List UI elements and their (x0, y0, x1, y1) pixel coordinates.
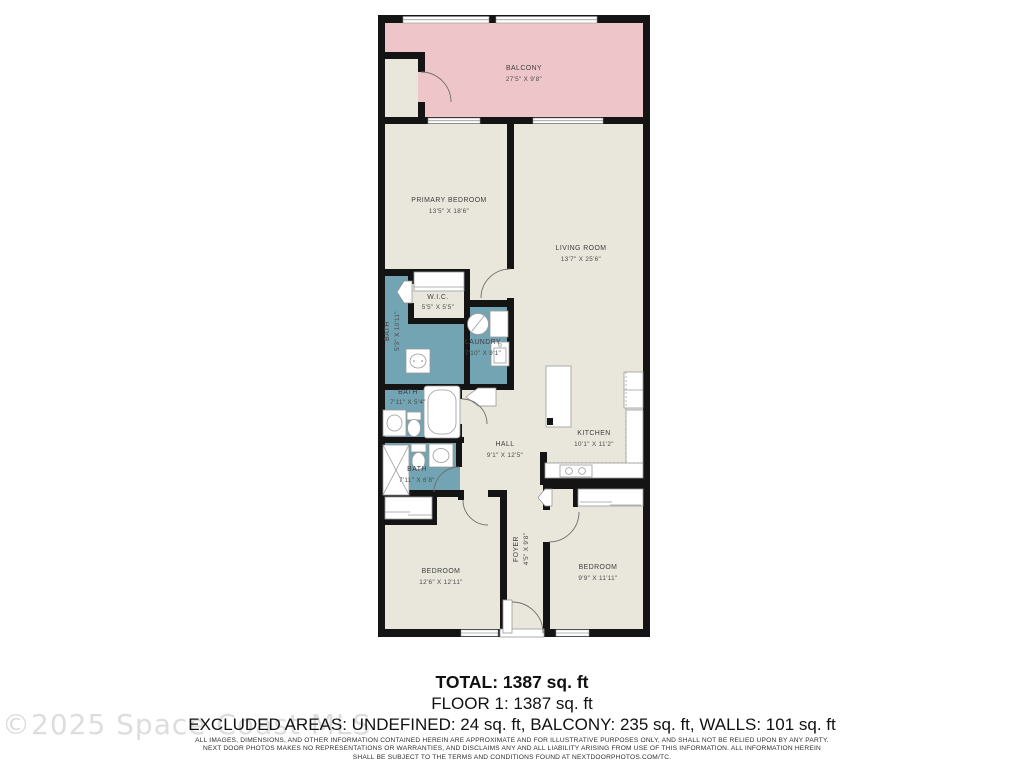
wall-bath3-right-a (456, 443, 462, 467)
disclaimer: ALL IMAGES, DIMENSIONS, AND OTHER INFORM… (0, 737, 1024, 762)
room-name: HALL (495, 441, 514, 448)
dryer (490, 311, 508, 337)
bath2-toilet-bowl (408, 420, 421, 437)
room-name: KITCHEN (577, 430, 610, 437)
room-dims: 9'9" X 11'11" (578, 575, 617, 582)
room-name: LAUNDRY (465, 339, 501, 346)
wall-balcony-closet-top (378, 52, 425, 59)
room-name: W.I.C. (427, 294, 448, 301)
floor-plan-page: BALCONY 27'5" X 9'8" PRIMARY BEDROOM 13'… (0, 0, 1024, 768)
floor-plan-drawing: BALCONY 27'5" X 9'8" PRIMARY BEDROOM 13'… (0, 0, 1024, 768)
disclaimer-line: SHALL BE SUBJECT TO THE TERMS AND CONDIT… (0, 754, 1024, 762)
wall-left-nook (458, 490, 464, 500)
left-bedroom-closet (385, 497, 432, 519)
room-name: FOYER (513, 536, 520, 562)
wall-wic-bottom (408, 318, 470, 324)
wall-right-bedroom-top (550, 483, 643, 489)
room-dims: 4'5" X 9'8" (523, 533, 530, 565)
wall-right-closet-left (573, 489, 578, 507)
wall-foyer-right-b (543, 542, 550, 629)
kitchen-island (546, 366, 571, 427)
right-bedroom-closet (578, 489, 643, 506)
area-summary: TOTAL: 1387 sq. ft FLOOR 1: 1387 sq. ft … (0, 672, 1024, 735)
kitchen-counter-right (626, 410, 643, 465)
bath1-faucet (421, 360, 423, 362)
wall-balcony-closet-right-b (418, 102, 425, 117)
room-dims: 9'1" X 12'5" (487, 452, 523, 459)
island-corner-mark (547, 418, 553, 425)
total-area-text: TOTAL: 1387 sq. ft (0, 672, 1024, 693)
room-dims: 7'10" X 9'1" (465, 350, 501, 357)
room-name: BATH (384, 321, 391, 341)
wall-outer-right (643, 15, 650, 637)
wall-primary-living-a (507, 122, 514, 269)
room-name: BATH (398, 389, 418, 396)
room-dims: 12'6" X 12'11" (419, 579, 463, 586)
balcony-closet-floor (385, 57, 418, 117)
wall-balcony-closet-right-a (418, 52, 425, 72)
room-name: BEDROOM (422, 568, 461, 575)
bath2-toilet-tank (407, 412, 421, 420)
room-name: BATH (407, 466, 427, 473)
room-dims: 5'5" X 5'5" (422, 304, 454, 311)
room-dims: 27'5" X 9'8" (506, 76, 542, 83)
bath2-vanity (383, 410, 406, 436)
room-dims: 10'1" X 11'2" (574, 441, 614, 448)
disclaimer-line: ALL IMAGES, DIMENSIONS, AND OTHER INFORM… (0, 737, 1024, 745)
room-name: BALCONY (506, 65, 542, 72)
disclaimer-line: NEXT DOOR PHOTOS MAKES NO REPRESENTATION… (0, 745, 1024, 753)
floor1-area-text: FLOOR 1: 1387 sq. ft (0, 693, 1024, 714)
room-dims: 7'11" X 6'8" (399, 477, 435, 484)
room-name: PRIMARY BEDROOM (411, 197, 486, 204)
wall-hall-south-b (488, 490, 507, 497)
stove (560, 465, 592, 477)
room-name: LIVING ROOM (556, 245, 607, 252)
excluded-areas-text: EXCLUDED AREAS: UNDEFINED: 24 sq. ft, BA… (0, 714, 1024, 735)
wall-left-closet-right (432, 497, 437, 525)
room-dims: 13'5" X 18'6" (429, 208, 469, 215)
room-dims: 7'11" X 5'4" (390, 399, 426, 406)
room-dims: 13'7" X 25'6" (561, 256, 601, 263)
wic-shelf (414, 272, 464, 291)
room-dims: 5'3" X 10'11" (394, 311, 401, 351)
wall-left-closet-bottom (378, 519, 437, 525)
wall-laundry-top (464, 300, 514, 307)
bath3-toilet-tank (411, 444, 426, 452)
bath1-faucet (413, 360, 415, 362)
room-name: BEDROOM (579, 564, 618, 571)
bathtub (424, 386, 460, 438)
entry-door-leaf (503, 600, 512, 633)
